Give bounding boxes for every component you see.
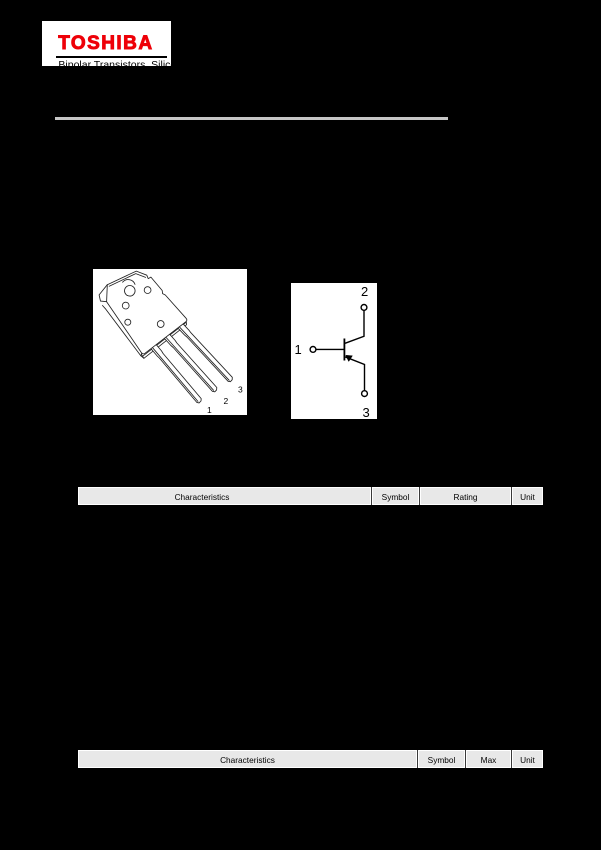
svg-text:1: 1 <box>207 405 212 415</box>
svg-text:3: 3 <box>238 385 243 395</box>
svg-text:1: 1 <box>295 342 302 357</box>
svg-text:2: 2 <box>224 396 229 406</box>
svg-text:2: 2 <box>361 284 368 299</box>
svg-text:3: 3 <box>363 405 370 419</box>
